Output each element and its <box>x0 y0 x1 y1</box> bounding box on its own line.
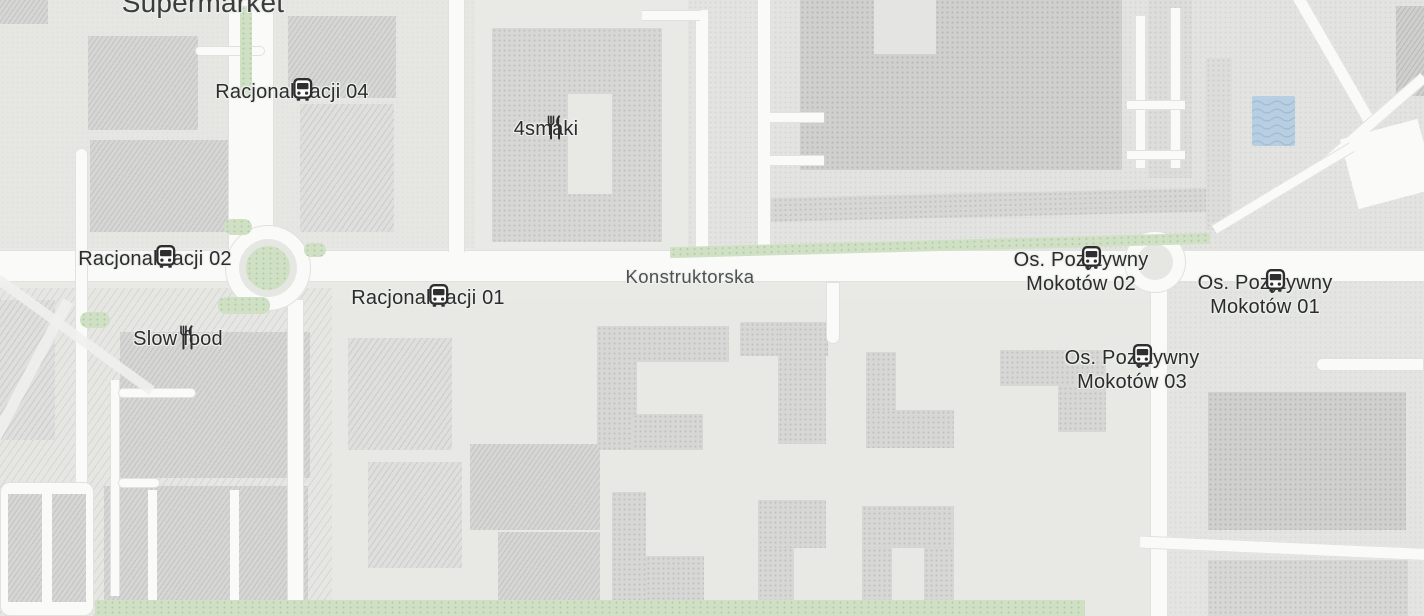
green-patch <box>304 243 326 257</box>
building <box>1206 58 1232 230</box>
green-patch <box>224 219 252 235</box>
poi-racjonalizacji-04[interactable]: Racjonalizacji 04 <box>215 78 368 104</box>
poi-racjonalizacji-02[interactable]: Racjonalizacji 02 <box>78 245 231 271</box>
road <box>1127 150 1185 160</box>
building <box>866 410 954 448</box>
parking-row <box>8 494 42 602</box>
building <box>1208 560 1408 616</box>
road <box>770 155 824 166</box>
parking-row <box>52 494 86 602</box>
park-strip <box>95 600 1085 616</box>
road <box>118 388 196 398</box>
parking-lane <box>230 490 239 616</box>
parking-area <box>104 486 308 616</box>
building <box>758 500 826 548</box>
building <box>633 414 703 450</box>
road <box>448 0 465 252</box>
road <box>287 300 304 616</box>
building <box>368 462 462 568</box>
street-label: Konstruktorska <box>626 266 755 288</box>
poi-label: Supermarket <box>122 0 285 20</box>
courtyard <box>874 0 936 54</box>
building <box>348 338 452 450</box>
road <box>195 46 265 56</box>
poi-os-pozytywny-mokotow-01[interactable]: Os. Pozytywny Mokotów 01 <box>1179 269 1351 319</box>
green-patch <box>218 297 270 314</box>
road <box>110 380 120 596</box>
green-patch <box>80 312 110 328</box>
poi-supermarket[interactable]: Supermarket <box>122 0 285 20</box>
road <box>1150 286 1168 616</box>
building <box>800 0 1122 170</box>
parking-lane <box>148 490 157 616</box>
pool <box>1252 96 1295 146</box>
building <box>597 326 637 450</box>
building <box>470 444 600 530</box>
poi-os-pozytywny-mokotow-02[interactable]: Os. Pozytywny Mokotów 02 <box>995 246 1167 296</box>
water-waves-icon <box>1252 96 1295 146</box>
building <box>778 322 826 444</box>
poi-os-pozytywny-mokotow-03[interactable]: Os. Pozytywny Mokotów 03 <box>1046 344 1218 394</box>
road <box>1127 100 1185 110</box>
building <box>0 0 48 24</box>
road <box>826 282 840 344</box>
building <box>612 492 646 616</box>
poi-4smaki[interactable]: 4smaki <box>514 115 579 141</box>
road <box>1135 16 1146 168</box>
road <box>118 478 160 488</box>
road <box>642 10 700 21</box>
building <box>862 506 954 548</box>
courtyard <box>568 94 612 194</box>
building <box>90 140 240 232</box>
road <box>757 0 771 252</box>
poi-racjonalizacji-01[interactable]: Racjonalizacji 01 <box>351 284 504 310</box>
building <box>120 332 310 478</box>
poi-slow-food[interactable]: Slow food <box>133 325 223 351</box>
building <box>300 104 394 232</box>
building <box>88 36 198 130</box>
road <box>1316 358 1424 371</box>
roundabout-green <box>246 246 290 290</box>
map-canvas[interactable]: Konstruktorska Supermarket Racjonalizacj… <box>0 0 1424 616</box>
road <box>695 10 709 252</box>
road <box>770 112 824 123</box>
building <box>1208 392 1406 530</box>
road <box>1170 8 1181 168</box>
